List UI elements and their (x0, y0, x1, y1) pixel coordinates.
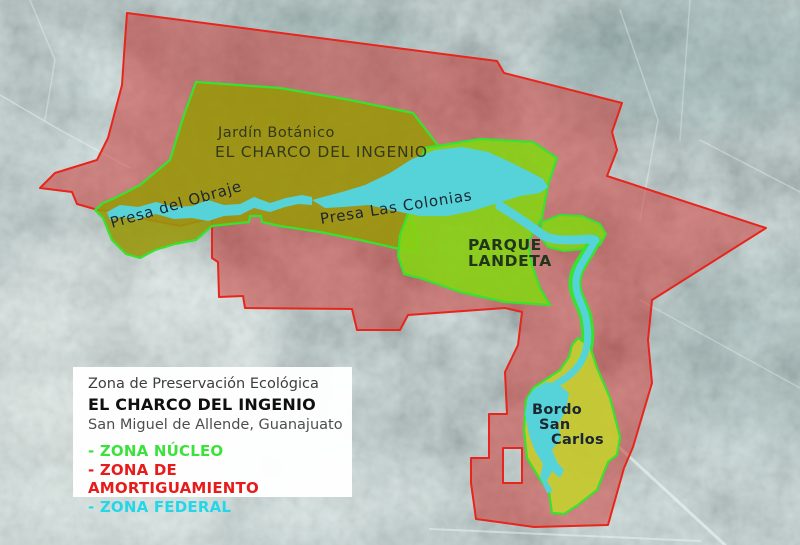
bordo-san-carlos-label-line2: San (539, 417, 570, 433)
jardin-botanico-label-line2: EL CHARCO DEL INGENIO (215, 143, 428, 161)
legend-entry-zona-amortiguamiento: - ZONA DE AMORTIGUAMIENTO (88, 461, 352, 498)
legend-box: Zona de Preservación Ecológica EL CHARCO… (73, 367, 352, 497)
jardin-botanico-label-line1: Jardín Botánico (217, 125, 335, 141)
parque-landeta-label-line2: LANDETA (468, 252, 552, 270)
legend-entry-zona-federal: - ZONA FEDERAL (88, 498, 352, 517)
bordo-san-carlos-label-line1: Bordo (532, 402, 582, 418)
legend-site-name: EL CHARCO DEL INGENIO (88, 395, 352, 414)
map-screenshot: Jardín Botánico EL CHARCO DEL INGENIO Pr… (0, 0, 800, 545)
legend-location: San Miguel de Allende, Guanajuato (88, 417, 352, 433)
legend-title: Zona de Preservación Ecológica (88, 376, 352, 392)
bordo-san-carlos-label-line3: Carlos (551, 432, 604, 448)
legend-entry-zona-nucleo: - ZONA NÚCLEO (88, 442, 352, 461)
